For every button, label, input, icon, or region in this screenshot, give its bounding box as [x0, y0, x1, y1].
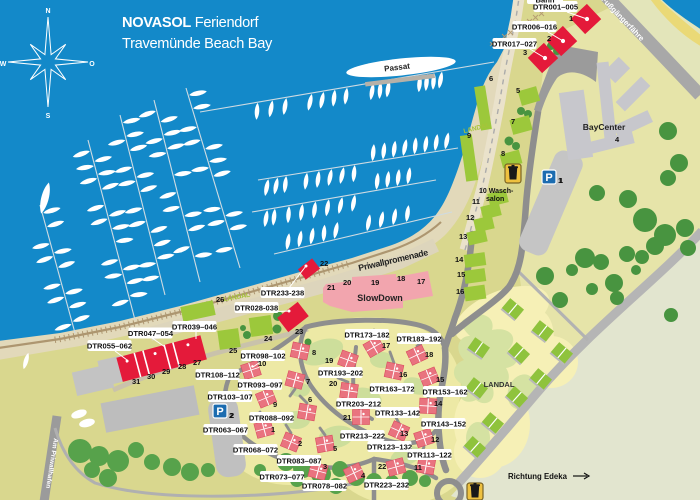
svg-text:DTR173–182: DTR173–182 [344, 331, 389, 340]
svg-text:O: O [89, 61, 95, 68]
svg-text:12: 12 [466, 213, 474, 222]
svg-text:Travemünde Beach Bay: Travemünde Beach Bay [122, 36, 273, 52]
svg-text:28: 28 [178, 362, 186, 371]
svg-text:21: 21 [327, 283, 335, 292]
svg-text:15: 15 [457, 270, 465, 279]
svg-text:DTR203–212: DTR203–212 [336, 400, 381, 409]
svg-text:LANDAL: LANDAL [484, 380, 515, 389]
svg-text:DTR073–077: DTR073–077 [259, 473, 304, 482]
svg-text:DTR055–062: DTR055–062 [87, 342, 132, 351]
svg-text:1: 1 [558, 176, 562, 185]
svg-text:18: 18 [425, 350, 433, 359]
svg-text:5: 5 [333, 444, 337, 453]
svg-text:15: 15 [436, 375, 444, 384]
svg-text:DTR193–202: DTR193–202 [318, 369, 363, 378]
svg-text:22: 22 [320, 259, 328, 268]
svg-text:5: 5 [516, 86, 520, 95]
svg-text:18: 18 [397, 274, 405, 283]
svg-text:2: 2 [298, 439, 302, 448]
svg-text:7: 7 [306, 377, 310, 386]
svg-text:P: P [545, 172, 552, 184]
svg-text:10 Wasch-: 10 Wasch- [479, 188, 514, 195]
svg-text:9: 9 [273, 400, 277, 409]
svg-text:20: 20 [343, 278, 351, 287]
svg-text:29: 29 [162, 367, 170, 376]
svg-text:14: 14 [455, 255, 464, 264]
svg-text:DTR113–122: DTR113–122 [407, 451, 452, 460]
svg-text:DTR163–172: DTR163–172 [369, 385, 414, 394]
svg-text:22: 22 [378, 462, 386, 471]
svg-text:19: 19 [325, 356, 333, 365]
svg-text:2: 2 [229, 411, 233, 420]
svg-text:DTR088–092: DTR088–092 [249, 414, 294, 423]
svg-text:6: 6 [489, 74, 493, 83]
svg-text:DTR108–112: DTR108–112 [195, 371, 240, 380]
svg-text:DTR006–016: DTR006–016 [512, 23, 557, 32]
svg-text:1: 1 [271, 425, 275, 434]
svg-text:DTR047–054: DTR047–054 [128, 329, 174, 338]
svg-text:8: 8 [312, 348, 316, 357]
svg-text:DTR123–132: DTR123–132 [367, 443, 412, 452]
svg-text:13: 13 [459, 232, 467, 241]
svg-text:DTR078–082: DTR078–082 [302, 482, 347, 491]
svg-text:27: 27 [193, 358, 201, 367]
svg-text:DTR017–027: DTR017–027 [492, 40, 537, 49]
svg-text:P: P [216, 406, 223, 418]
svg-text:DTR103–107: DTR103–107 [207, 393, 252, 402]
svg-text:DTR183–192: DTR183–192 [396, 335, 441, 344]
svg-text:8: 8 [501, 149, 505, 158]
svg-text:salon: salon [486, 196, 504, 203]
svg-text:BayCenter: BayCenter [583, 122, 626, 132]
svg-text:31: 31 [132, 377, 140, 386]
svg-text:23: 23 [295, 327, 303, 336]
svg-text:DTR133–142: DTR133–142 [375, 409, 420, 418]
svg-text:DTR233-238: DTR233-238 [261, 289, 304, 298]
svg-text:24: 24 [264, 334, 273, 343]
svg-text:DTR039–046: DTR039–046 [172, 323, 217, 332]
svg-text:21: 21 [343, 413, 351, 422]
svg-text:1: 1 [569, 14, 573, 23]
svg-text:DTR143–152: DTR143–152 [421, 420, 466, 429]
svg-text:25: 25 [229, 346, 237, 355]
svg-text:11: 11 [472, 197, 480, 206]
svg-text:7: 7 [511, 117, 515, 126]
svg-text:DTR223–232: DTR223–232 [364, 481, 409, 490]
svg-text:DTR213–222: DTR213–222 [340, 432, 385, 441]
svg-text:S: S [46, 113, 51, 120]
svg-text:16: 16 [399, 370, 407, 379]
svg-text:10: 10 [258, 359, 266, 368]
svg-text:W: W [0, 61, 7, 68]
svg-text:16: 16 [456, 287, 464, 296]
svg-text:DTR063–067: DTR063–067 [203, 426, 248, 435]
svg-text:6: 6 [308, 395, 312, 404]
svg-text:20: 20 [329, 379, 337, 388]
svg-text:3: 3 [523, 48, 527, 57]
svg-text:17: 17 [417, 277, 425, 286]
svg-text:N: N [45, 8, 50, 15]
svg-text:SlowDown: SlowDown [357, 293, 403, 303]
svg-text:DTR153–162: DTR153–162 [422, 388, 467, 397]
svg-text:11: 11 [414, 463, 422, 472]
svg-text:DTR068–072: DTR068–072 [233, 446, 278, 455]
svg-text:DTR083–087: DTR083–087 [276, 457, 321, 466]
svg-text:DTR093–097: DTR093–097 [237, 381, 282, 390]
svg-text:NOVASOL Feriendorf: NOVASOL Feriendorf [122, 15, 259, 31]
svg-text:3: 3 [323, 462, 327, 471]
svg-text:14: 14 [434, 399, 443, 408]
svg-text:2: 2 [547, 34, 551, 43]
svg-text:19: 19 [371, 278, 379, 287]
svg-text:13: 13 [400, 429, 408, 438]
svg-text:DTR028-038: DTR028-038 [235, 304, 278, 313]
svg-text:30: 30 [147, 372, 155, 381]
svg-text:Richtung Edeka: Richtung Edeka [508, 472, 568, 481]
svg-text:12: 12 [431, 435, 439, 444]
svg-text:Bahn: Bahn [536, 0, 555, 5]
svg-text:17: 17 [382, 341, 390, 350]
